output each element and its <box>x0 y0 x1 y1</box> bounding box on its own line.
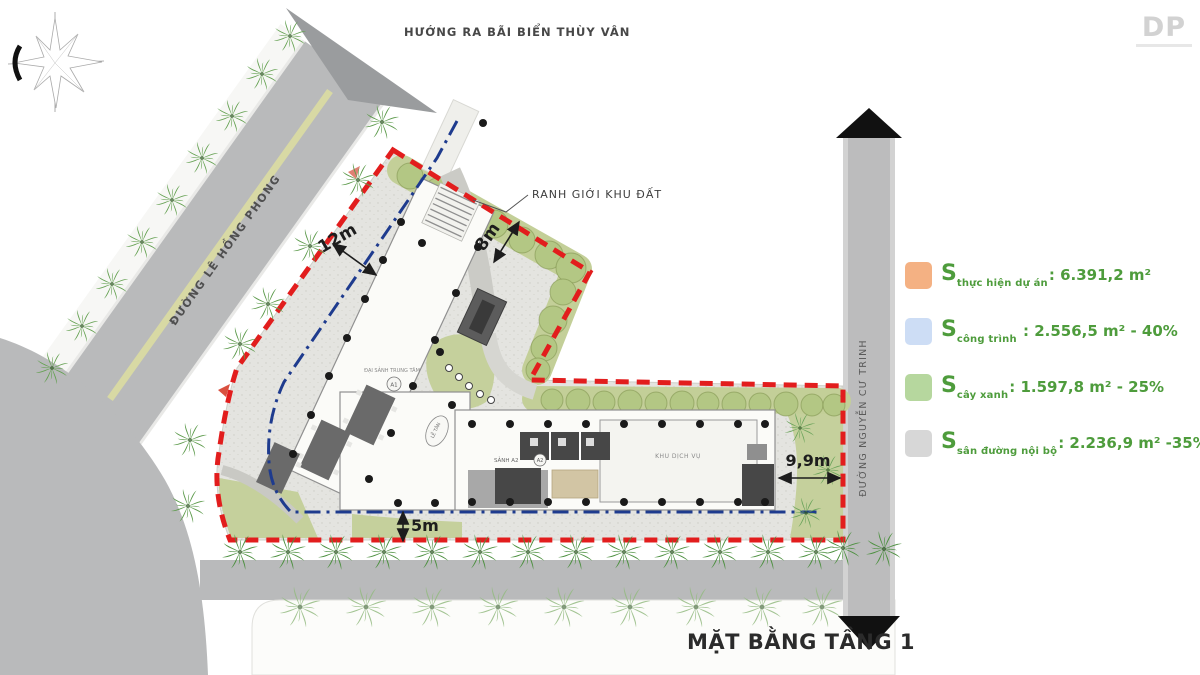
road-south <box>200 560 895 600</box>
road-nguyen-cu-trinh <box>836 108 902 650</box>
compass-rose-icon <box>8 12 104 112</box>
legend-item-building-area: Scông trình : 2.556,5 m² - 40% <box>905 318 1197 345</box>
road-label-nguyen-cu-trinh: ĐƯỜNG NGUYỄN CƯ TRINH <box>856 339 869 497</box>
dp-logo-subtext-bar <box>1136 44 1192 47</box>
east-core <box>742 464 774 506</box>
service-room <box>600 420 757 502</box>
dp-logo: DP <box>1136 14 1192 47</box>
service-area-label: KHU DỊCH VỤ <box>655 453 701 460</box>
boundary-callout: RANH GIỚI KHU ĐẤT <box>473 187 662 212</box>
svg-text:9,9m: 9,9m <box>785 451 830 470</box>
area-legend: Sthực hiện dự án: 6.391,2 m² Scông trình… <box>905 262 1197 486</box>
boundary-label: RANH GIỚI KHU ĐẤT <box>532 187 662 201</box>
road-arrow-up-icon <box>836 108 902 138</box>
legend-item-project-area: Sthực hiện dự án: 6.391,2 m² <box>905 262 1197 289</box>
legend-swatch-blue <box>905 318 932 345</box>
legend-swatch-green <box>905 374 932 401</box>
sheet-title: MẶT BẰNG TẦNG 1 <box>651 630 951 654</box>
block-a2-label: A2 <box>537 458 544 464</box>
beach-direction-label: HƯỚNG RA BÃI BIỂN THÙY VÂN <box>404 22 630 39</box>
site-plan-sheet: 12m 8m 5m 9,9m RANH GIỚI KHU ĐẤT ĐẠI SẢN… <box>0 0 1200 675</box>
legend-swatch-gray <box>905 430 932 457</box>
legend-item-road-area: Ssân đường nội bộ: 2.236,9 m² -35% <box>905 430 1197 457</box>
main-hall-label: ĐẠI SẢNH TRUNG TÂM <box>364 366 420 374</box>
svg-text:5m: 5m <box>411 516 439 535</box>
hall-a2-label: SẢNH A2 <box>494 456 519 464</box>
dp-logo-text: DP <box>1136 14 1192 42</box>
block-a1-label: A1 <box>390 383 397 389</box>
legend-swatch-orange <box>905 262 932 289</box>
legend-item-green-area: Scây xanh: 1.597,8 m² - 25% <box>905 374 1197 401</box>
